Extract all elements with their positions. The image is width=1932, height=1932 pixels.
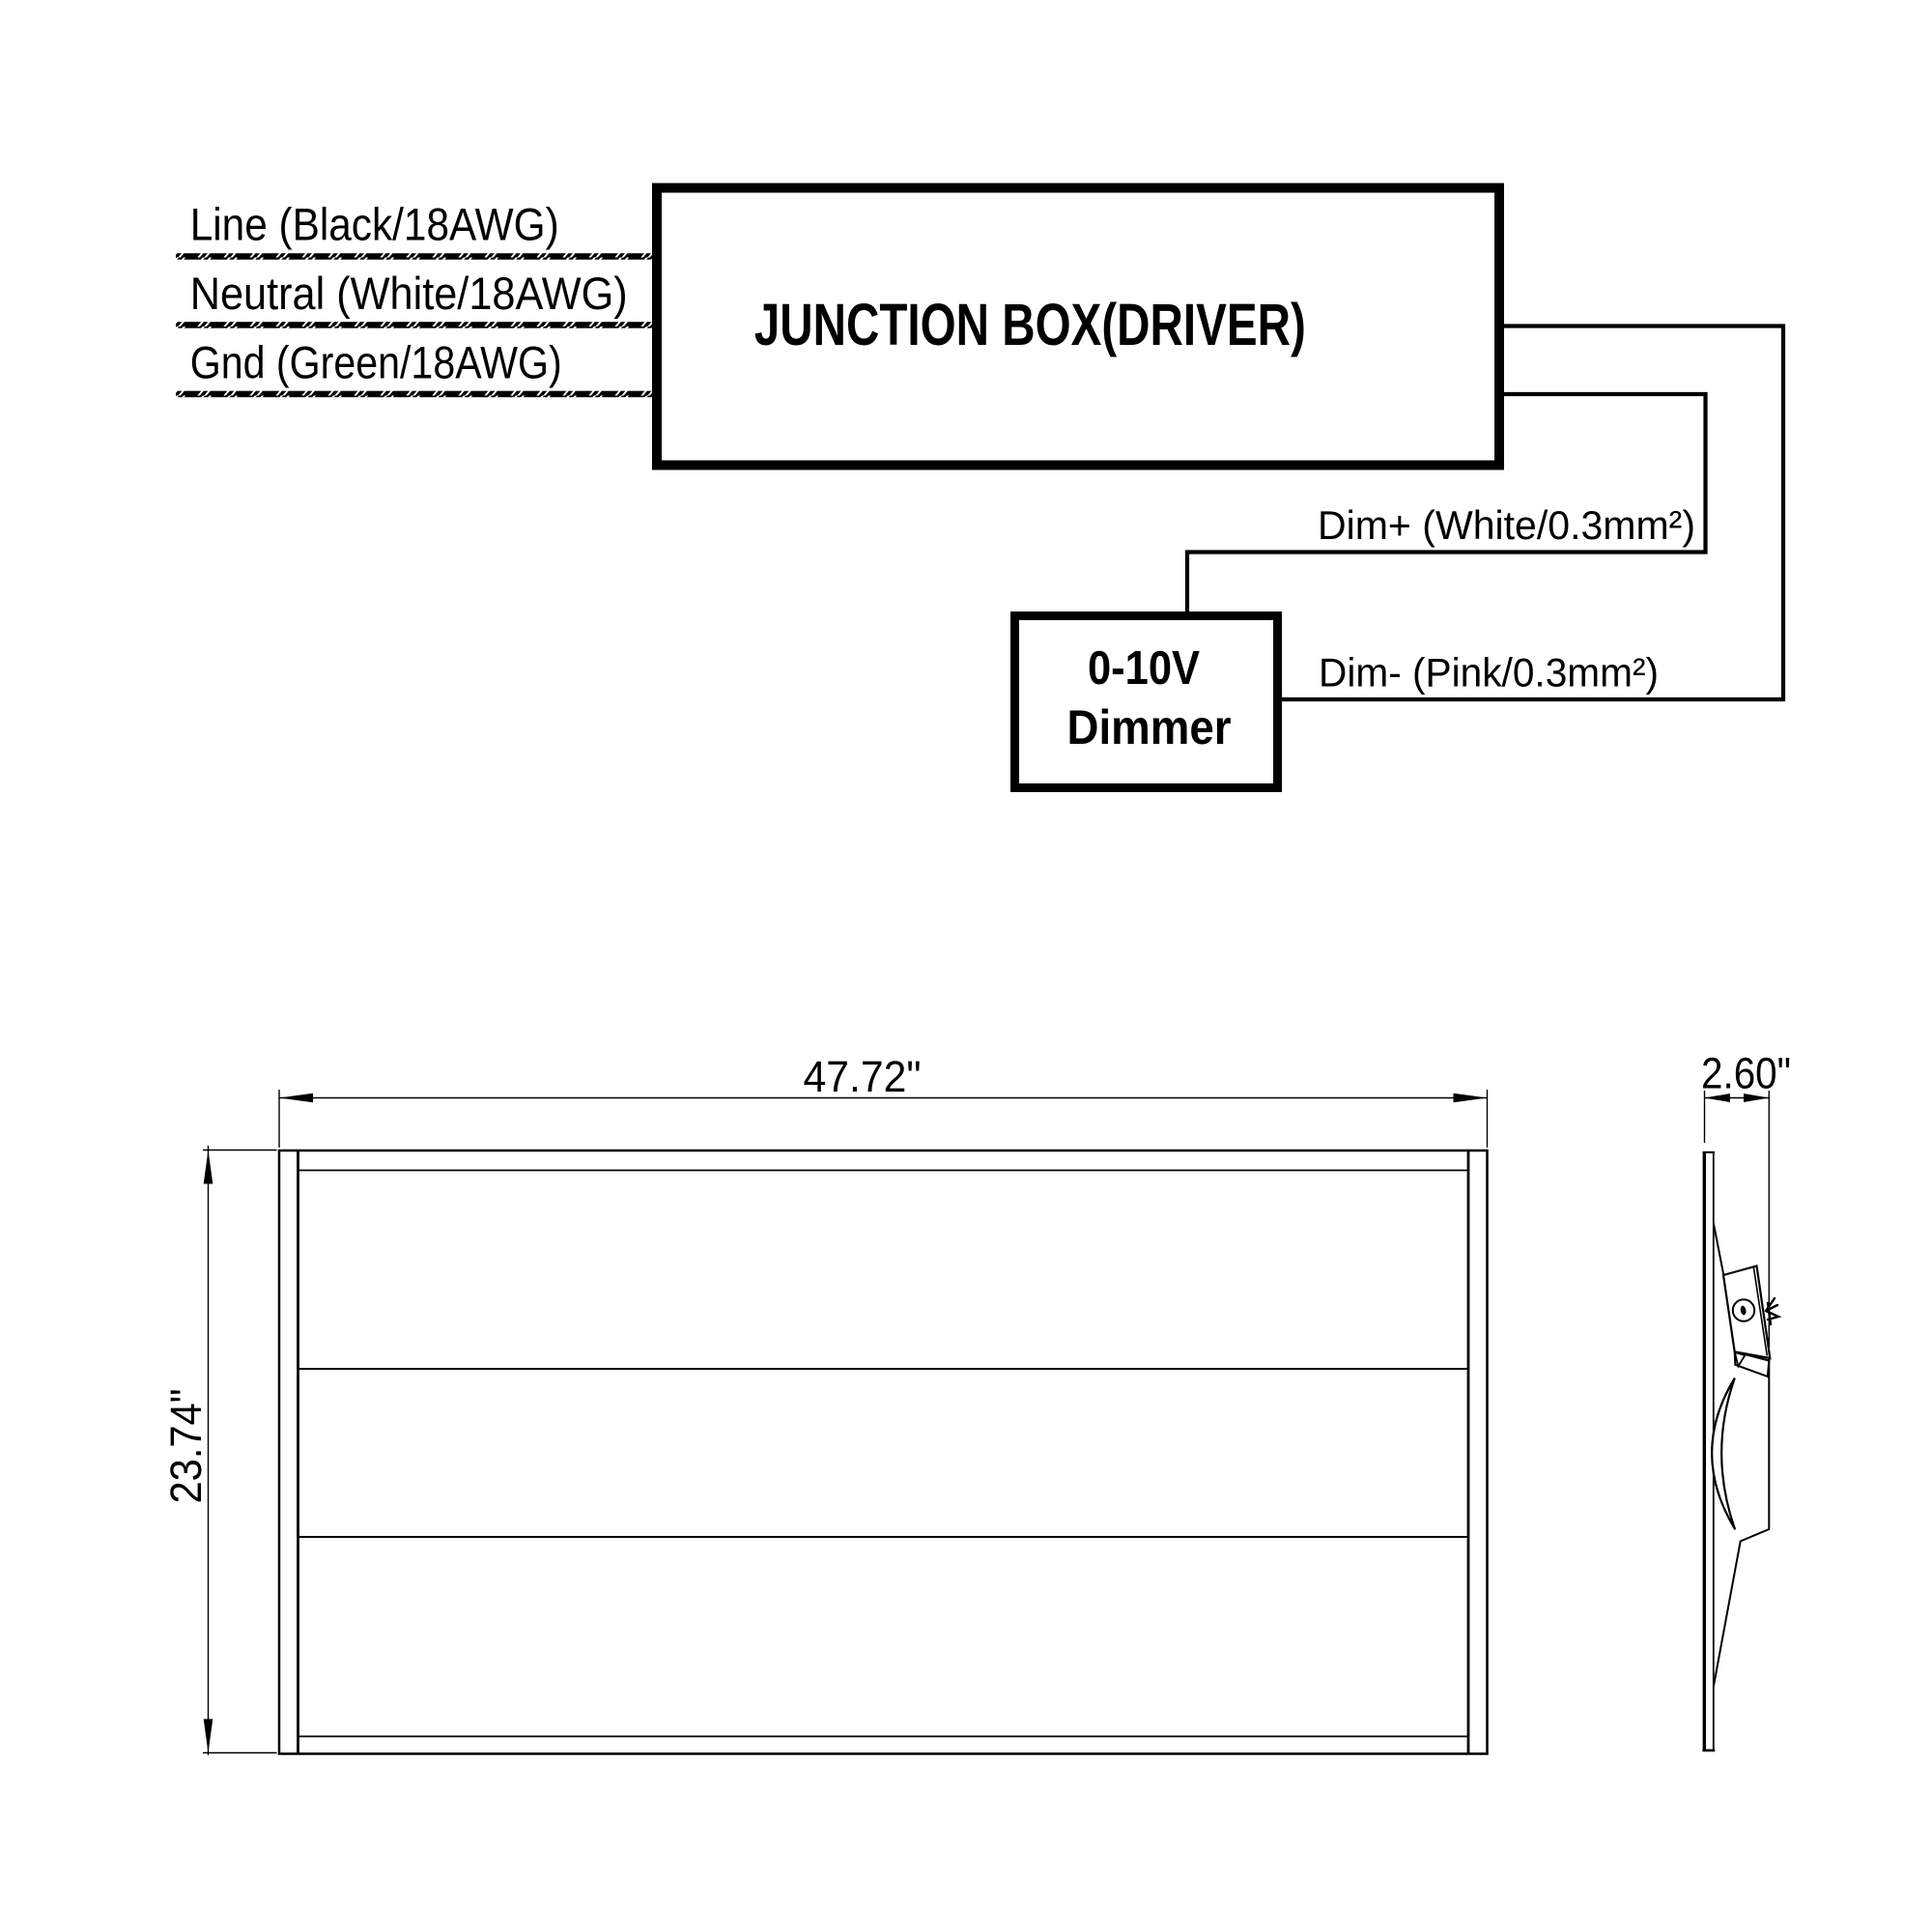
svg-text:Line (Black/18AWG): Line (Black/18AWG): [190, 199, 559, 250]
svg-text:47.72": 47.72": [804, 1052, 922, 1101]
svg-text:2.60": 2.60": [1701, 1048, 1791, 1097]
svg-text:JUNCTION BOX(DRIVER): JUNCTION BOX(DRIVER): [754, 292, 1306, 357]
svg-text:Neutral (White/18AWG): Neutral (White/18AWG): [190, 268, 628, 319]
svg-text:Dim+ (White/0.3mm²): Dim+ (White/0.3mm²): [1318, 502, 1695, 548]
svg-text:Dimmer: Dimmer: [1067, 700, 1232, 754]
svg-text:Gnd (Green/18AWG): Gnd (Green/18AWG): [190, 337, 562, 388]
svg-text:0-10V: 0-10V: [1088, 642, 1200, 695]
svg-text:Dim- (Pink/0.3mm²): Dim- (Pink/0.3mm²): [1319, 650, 1659, 696]
svg-text:23.74": 23.74": [161, 1389, 211, 1504]
